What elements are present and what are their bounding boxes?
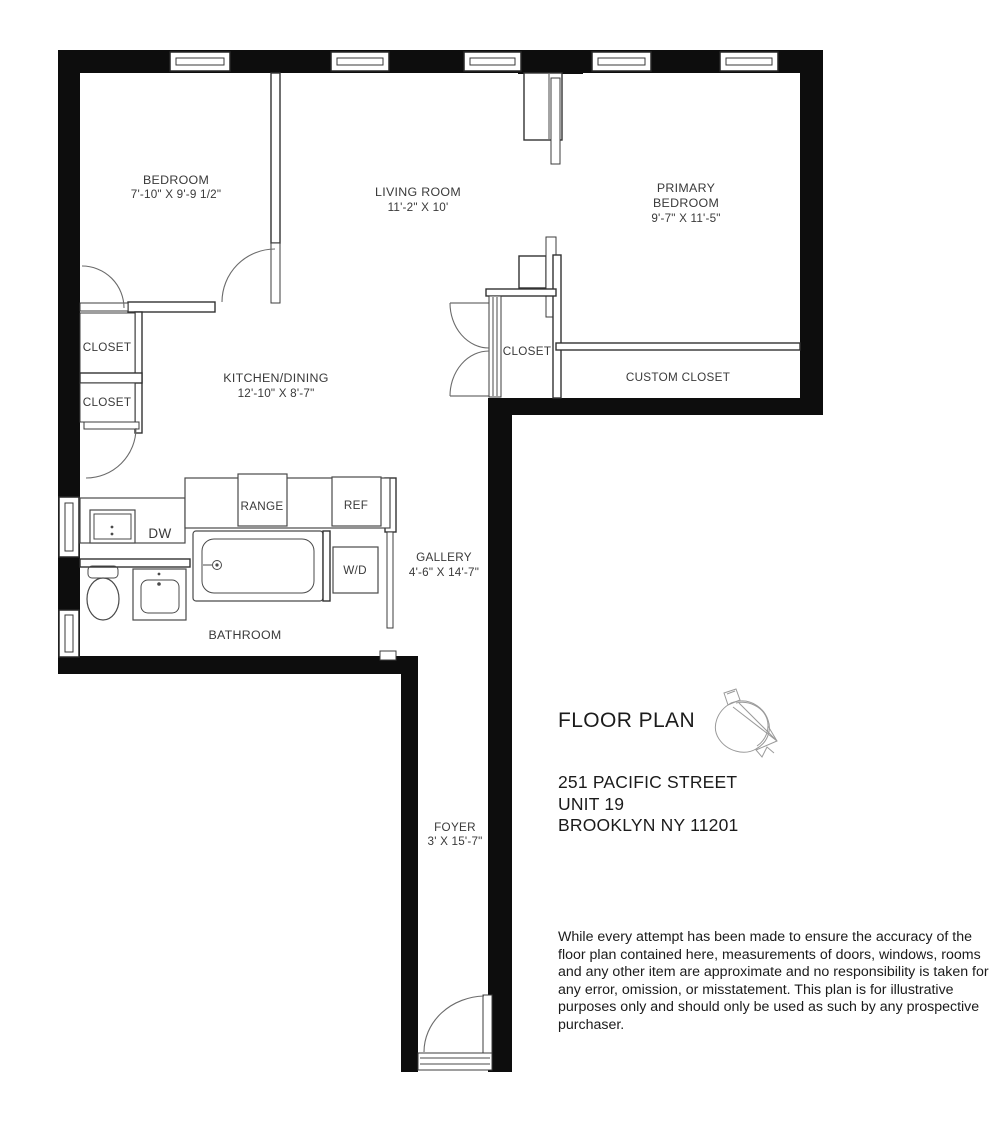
hall-closet-arc <box>86 428 136 478</box>
primary-closet-label: CLOSET <box>503 345 552 358</box>
address-line-2: UNIT 19 <box>558 794 738 816</box>
mid-bottom-wall <box>488 398 823 415</box>
gallery-foyer-right-wall <box>488 398 512 1072</box>
custom-closet-top-wall <box>556 343 800 350</box>
left-wall <box>58 50 80 674</box>
primary-closet-door-jamb <box>489 296 501 397</box>
sliding-door-upper <box>551 78 560 164</box>
bathroom-label: BATHROOM <box>208 628 281 642</box>
disclaimer-text: While every attempt has been made to ens… <box>558 929 990 1035</box>
entry-door <box>418 995 492 1070</box>
primary-column-stub <box>518 50 583 74</box>
address-block: 251 PACIFIC STREET UNIT 19 BROOKLYN NY 1… <box>558 772 738 837</box>
bathtub <box>193 531 323 601</box>
bathroom-door-guide <box>380 651 396 660</box>
bathroom-bottom-wall <box>58 656 418 674</box>
bedroom-door-arc <box>222 249 275 302</box>
primary-bedroom-label-line2: BEDROOM <box>653 196 719 210</box>
window-top-1 <box>170 52 230 71</box>
foyer-label: FOYER <box>434 821 476 834</box>
living-room-dims: 11'-2" X 10' <box>388 201 449 214</box>
kitchen-dining-label: KITCHEN/DINING <box>223 371 328 385</box>
bedroom-dims: 7'-10" X 9'-9 1/2" <box>131 188 221 201</box>
dishwasher-label: DW <box>148 526 171 541</box>
custom-closet-label: CUSTOM CLOSET <box>626 371 730 384</box>
window-left-1 <box>59 497 79 557</box>
hall-closet-label: CLOSET <box>83 396 132 409</box>
window-top-3 <box>464 52 521 71</box>
kitchen-dining-dims: 12'-10" X 8'-7" <box>238 387 315 400</box>
right-wall <box>800 50 823 415</box>
toilet <box>87 566 119 620</box>
column-pier-lower <box>519 256 546 288</box>
leaf-logo-icon <box>715 689 777 757</box>
living-room-label: LIVING ROOM <box>375 185 461 199</box>
window-left-2 <box>59 610 79 657</box>
gallery-label: GALLERY <box>416 551 472 564</box>
hall-closet-door <box>84 422 139 429</box>
floor-plan-page: BEDROOM 7'-10" X 9'-9 1/2" LIVING ROOM 1… <box>0 0 1000 1121</box>
bedroom-bottom-wall <box>128 302 215 312</box>
primary-closet-wall <box>553 255 561 398</box>
primary-closet-top-wall <box>486 289 556 296</box>
bedroom-closet-door <box>80 303 128 311</box>
bedroom-living-wall <box>271 73 280 243</box>
entry-door-leaf <box>483 995 492 1053</box>
window-top-4 <box>592 52 651 71</box>
bathroom-fixtures <box>87 531 378 620</box>
bathroom-pocket-door-leaf <box>387 532 393 628</box>
window-top-2 <box>331 52 389 71</box>
tub-wd-wall <box>323 531 330 601</box>
closet-divider-wall <box>80 373 142 383</box>
entry-door-arc <box>424 996 484 1052</box>
refrigerator-label: REF <box>344 499 368 512</box>
floor-plan-title: FLOOR PLAN <box>558 709 695 733</box>
primary-bedroom-label-line1: PRIMARY <box>657 181 715 195</box>
entry-threshold <box>418 1053 492 1070</box>
window-top-5 <box>720 52 778 71</box>
primary-bedroom-dims: 9'-7" X 11'-5" <box>651 212 720 225</box>
bedroom-closet-label: CLOSET <box>83 341 132 354</box>
bedroom-door-leaf <box>271 243 280 303</box>
gallery-dims: 4'-6" X 14'-7" <box>409 566 479 579</box>
address-line-3: BROOKLYN NY 11201 <box>558 815 738 837</box>
dishwasher-box <box>90 510 135 543</box>
foyer-dims: 3' X 15'-7" <box>428 835 483 848</box>
primary-closet-double-doors <box>450 303 489 396</box>
bedroom-label: BEDROOM <box>143 173 209 187</box>
range-label: RANGE <box>240 500 283 513</box>
foyer-left-wall <box>401 670 418 1072</box>
bedroom-closet-arc <box>82 266 124 308</box>
washer-dryer-label: W/D <box>343 564 367 577</box>
address-line-1: 251 PACIFIC STREET <box>558 772 738 794</box>
bathroom-sink <box>133 569 186 620</box>
